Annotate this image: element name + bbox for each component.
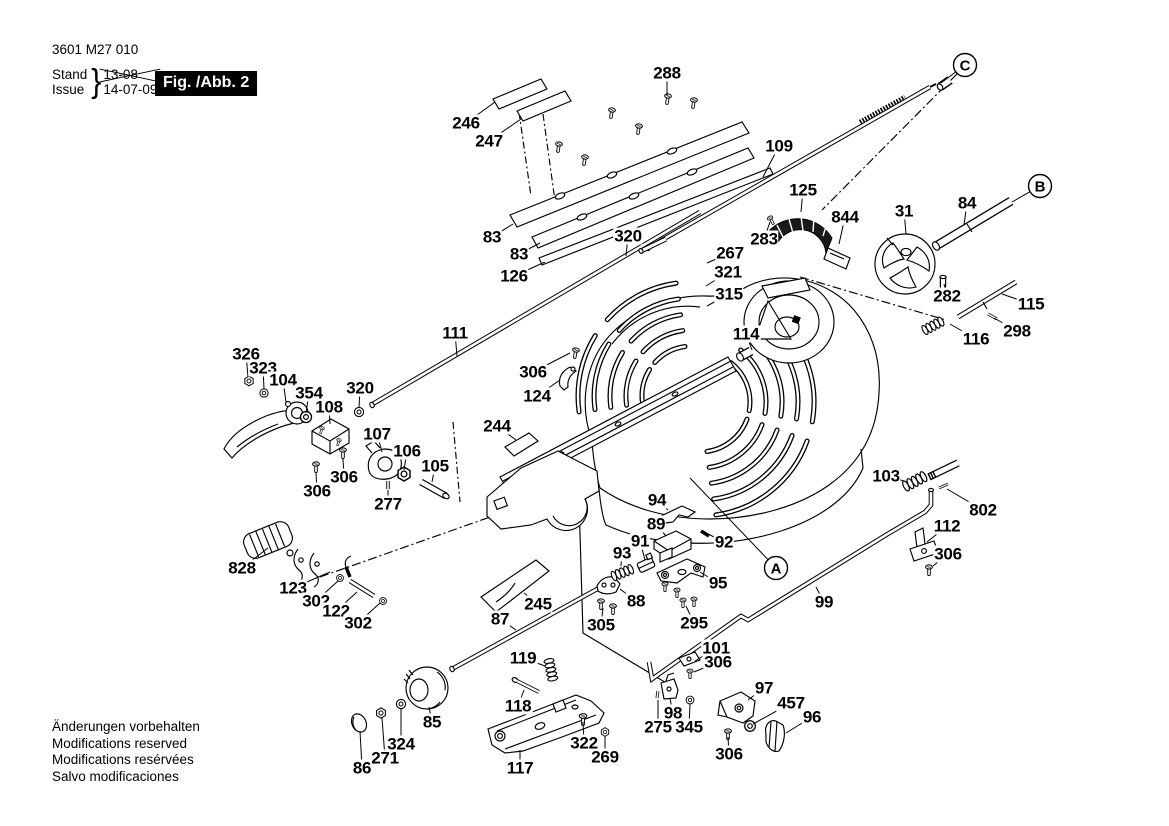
label-plate-244 — [505, 433, 538, 456]
stand-label: Stand — [52, 67, 87, 82]
screw-295-d — [691, 597, 697, 607]
part-label-126: 126 — [499, 268, 528, 285]
pin-105 — [421, 482, 450, 500]
hook-124 — [559, 367, 576, 390]
legal-notice: Änderungen vorbehalten Modifications res… — [52, 719, 200, 785]
callout-A: A — [765, 557, 788, 580]
bracket-97 — [718, 692, 755, 723]
part-label-92: 92 — [714, 534, 734, 551]
washer-354 — [300, 411, 311, 422]
washer-345 — [686, 696, 694, 704]
pin-122 — [350, 581, 374, 596]
knob-85 — [404, 667, 448, 709]
revision-block: Stand Issue } 13-08 14-07-09 — [52, 65, 157, 99]
figure-label-box: Fig. /Abb. 2 — [155, 71, 257, 96]
spring-119 — [544, 658, 558, 682]
part-label-315: 315 — [714, 286, 743, 303]
exploded-view-drawing: ABC — [0, 0, 1169, 826]
part-label-125: 125 — [788, 182, 817, 199]
screw-306-b — [340, 448, 347, 459]
washer-302-a — [337, 575, 344, 582]
pin-118 — [511, 677, 539, 692]
lock-lever-104 — [224, 402, 309, 459]
washer-457 — [745, 721, 756, 732]
part-label-83: 83 — [509, 246, 529, 263]
part-label-85: 85 — [422, 714, 442, 731]
part-label-321: 321 — [713, 264, 742, 281]
part-label-267: 267 — [715, 245, 744, 262]
handwheel-31 — [875, 234, 935, 294]
part-label-106: 106 — [392, 443, 421, 460]
part-label-124: 124 — [522, 388, 551, 405]
svg-text:C: C — [960, 58, 971, 75]
part-label-306: 306 — [329, 469, 358, 486]
part-label-99: 99 — [814, 594, 834, 611]
svg-text:A: A — [771, 561, 782, 578]
part-label-114: 114 — [732, 326, 761, 343]
part-label-118: 118 — [504, 698, 533, 715]
part-label-306: 306 — [302, 483, 331, 500]
spring-93 — [610, 564, 635, 582]
part-label-111: 111 — [441, 325, 469, 342]
part-label-295: 295 — [679, 615, 708, 632]
spring-103 — [901, 471, 928, 492]
part-label-103: 103 — [871, 468, 900, 485]
part-label-83: 83 — [482, 229, 502, 246]
callout-B: B — [1029, 175, 1052, 198]
part-label-107: 107 — [362, 426, 391, 443]
part-label-320: 320 — [613, 228, 642, 245]
part-label-282: 282 — [932, 288, 961, 305]
part-label-108: 108 — [314, 399, 343, 416]
part-label-115: 115 — [1017, 296, 1046, 313]
part-label-94: 94 — [647, 492, 667, 509]
pin-92 — [701, 531, 709, 536]
part-label-283: 283 — [749, 231, 778, 248]
part-label-802: 802 — [968, 502, 997, 519]
part-label-298: 298 — [1002, 323, 1031, 340]
part-label-245: 245 — [523, 596, 552, 613]
screw-306-112 — [926, 565, 933, 576]
screw-306-table — [571, 347, 580, 359]
clip-101 — [679, 652, 700, 666]
part-label-277: 277 — [373, 496, 402, 513]
part-label-345: 345 — [674, 719, 703, 736]
washer-302-b — [380, 598, 387, 605]
part-label-246: 246 — [451, 115, 480, 132]
svg-text:B: B — [1035, 179, 1046, 196]
notice-line-de: Änderungen vorbehalten — [52, 719, 200, 736]
part-label-244: 244 — [482, 418, 511, 435]
washer-320b — [354, 407, 363, 416]
stand-value-struck: 13-08 — [103, 67, 157, 82]
part-label-96: 96 — [802, 709, 822, 726]
part-label-87: 87 — [490, 611, 510, 628]
part-label-86: 86 — [352, 760, 372, 777]
screw-305-a — [598, 599, 605, 610]
issue-label: Issue — [52, 82, 87, 97]
screw-295-a — [662, 582, 668, 592]
part-label-306: 306 — [933, 546, 962, 563]
knob-96 — [766, 721, 785, 752]
part-label-828: 828 — [227, 560, 256, 577]
part-label-97: 97 — [754, 680, 774, 697]
bracket-95 — [657, 559, 705, 583]
part-label-89: 89 — [646, 516, 666, 533]
part-label-116: 116 — [962, 331, 991, 348]
part-label-112: 112 — [933, 518, 962, 535]
pin-802 — [929, 463, 958, 488]
notice-line-en: Modifications reserved — [52, 736, 200, 753]
part-label-306: 306 — [714, 746, 743, 763]
screw-306-101 — [687, 669, 693, 679]
part-label-320: 320 — [345, 380, 374, 397]
nut-271 — [377, 708, 386, 718]
title-block: 3601 M27 010 Stand Issue } 13-08 14-07-0… — [52, 42, 157, 99]
block-98 — [661, 673, 678, 699]
washer-323 — [260, 389, 268, 397]
part-label-117: 117 — [506, 760, 535, 777]
part-label-84: 84 — [957, 195, 977, 212]
screw-306-a — [313, 462, 320, 473]
cap-86 — [349, 711, 370, 734]
block-91 — [635, 553, 656, 573]
washer-324 — [396, 699, 405, 708]
pin-275 — [657, 691, 658, 698]
front-casting — [487, 451, 599, 530]
part-label-119: 119 — [509, 650, 538, 667]
callout-C: C — [954, 54, 977, 77]
document-number: 3601 M27 010 — [52, 42, 157, 57]
screw-305-b — [610, 604, 617, 615]
channel-89 — [654, 531, 691, 562]
part-label-247: 247 — [474, 133, 503, 150]
part-label-88: 88 — [626, 593, 646, 610]
part-label-109: 109 — [764, 138, 793, 155]
shaft-115 — [958, 282, 1016, 317]
screw-283 — [767, 215, 777, 226]
part-label-305: 305 — [586, 617, 615, 634]
part-label-288: 288 — [652, 65, 681, 82]
nut-326 — [245, 376, 253, 386]
notice-line-es: Salvo modificaciones — [52, 769, 200, 786]
part-label-306: 306 — [518, 364, 547, 381]
part-label-306: 306 — [703, 654, 732, 671]
pin-298 — [988, 314, 997, 319]
nut-269 — [601, 728, 608, 737]
part-label-105: 105 — [420, 458, 449, 475]
part-label-844: 844 — [830, 209, 859, 226]
issue-value: 14-07-09 — [103, 82, 157, 97]
part-label-271: 271 — [370, 750, 399, 767]
screw-295-b — [674, 588, 680, 598]
part-label-31: 31 — [894, 203, 914, 220]
part-label-95: 95 — [708, 575, 728, 592]
part-label-275: 275 — [643, 719, 672, 736]
part-label-302: 302 — [343, 615, 372, 632]
screw-295-c — [680, 598, 686, 608]
part-label-91: 91 — [630, 533, 650, 550]
notice-line-fr: Modifications resérvées — [52, 752, 200, 769]
grip-pad-828 — [241, 519, 295, 561]
part-label-269: 269 — [590, 749, 619, 766]
parts-diagram-page: ABC 3601 M27 010 Stand Issue } 13-08 14-… — [0, 0, 1169, 826]
bracket-844 — [824, 248, 850, 269]
spring-116 — [921, 316, 945, 335]
